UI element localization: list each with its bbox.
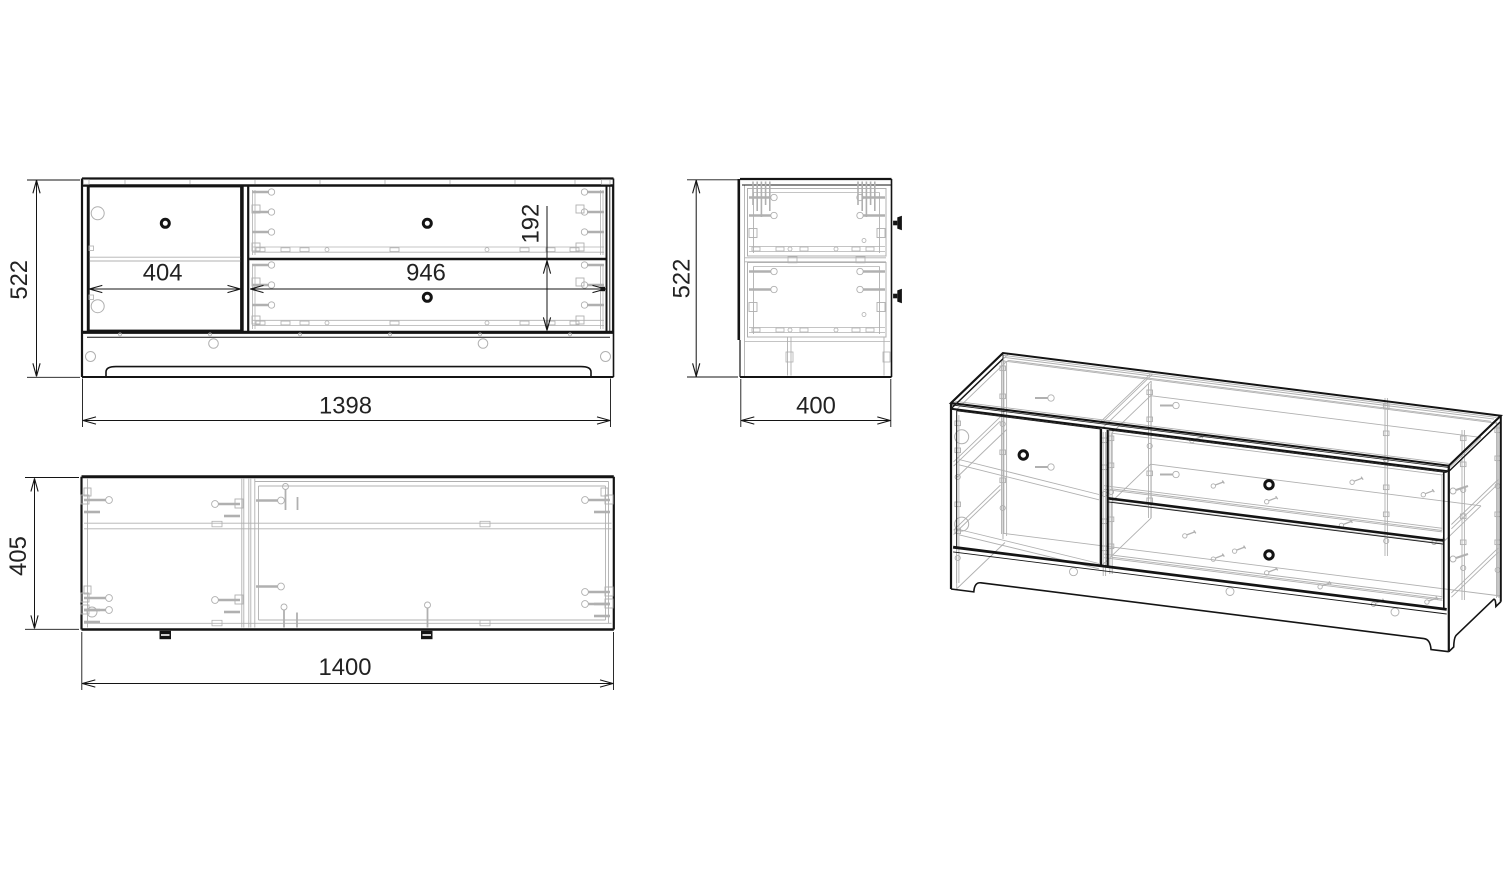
svg-text:522: 522: [6, 260, 33, 300]
svg-text:1398: 1398: [319, 392, 372, 419]
svg-text:404: 404: [143, 260, 183, 287]
svg-text:522: 522: [669, 259, 696, 299]
svg-text:192: 192: [518, 204, 545, 244]
svg-text:400: 400: [796, 393, 836, 420]
svg-text:405: 405: [5, 536, 32, 576]
svg-text:1400: 1400: [319, 654, 372, 681]
svg-text:946: 946: [406, 260, 446, 287]
